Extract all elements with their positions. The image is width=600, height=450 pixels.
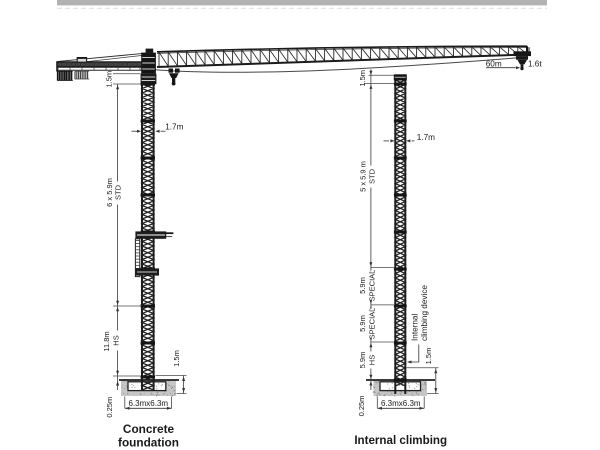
svg-text:5.9m: 5.9m [358, 277, 367, 294]
svg-text:11.8m: 11.8m [102, 331, 111, 351]
svg-text:1.5m: 1.5m [358, 70, 367, 87]
svg-text:6.3mx6.3m: 6.3mx6.3m [129, 399, 169, 408]
svg-text:1.5m: 1.5m [424, 348, 433, 365]
svg-text:STD: STD [114, 184, 123, 200]
svg-text:5 x 5.9 m: 5 x 5.9 m [358, 161, 367, 192]
svg-text:Concrete: Concrete [123, 422, 175, 436]
svg-text:SPECIAL: SPECIAL [368, 308, 377, 340]
svg-text:0.25m: 0.25m [357, 396, 366, 417]
svg-text:STD: STD [368, 168, 377, 184]
svg-text:5.9m: 5.9m [358, 315, 367, 332]
svg-text:foundation: foundation [118, 435, 179, 449]
svg-text:HS: HS [111, 335, 120, 345]
svg-text:1.5m: 1.5m [104, 71, 113, 88]
svg-text:Internal: Internal [410, 314, 419, 341]
svg-text:6 x 5.9m: 6 x 5.9m [105, 178, 114, 207]
svg-text:6.3mx6.3m: 6.3mx6.3m [381, 399, 421, 408]
svg-text:HS: HS [368, 355, 377, 365]
svg-text:5.9m: 5.9m [358, 352, 367, 369]
svg-text:1.7m: 1.7m [165, 123, 183, 132]
svg-text:Internal climbing: Internal climbing [354, 434, 447, 447]
svg-text:1.5m: 1.5m [172, 350, 181, 367]
svg-text:60m: 60m [486, 59, 502, 68]
svg-text:climbing device: climbing device [420, 285, 429, 341]
svg-text:SPECIAL: SPECIAL [368, 270, 377, 302]
svg-text:0.25m: 0.25m [105, 397, 114, 418]
svg-text:1.6t: 1.6t [528, 60, 542, 69]
svg-text:1.7m: 1.7m [417, 133, 435, 142]
